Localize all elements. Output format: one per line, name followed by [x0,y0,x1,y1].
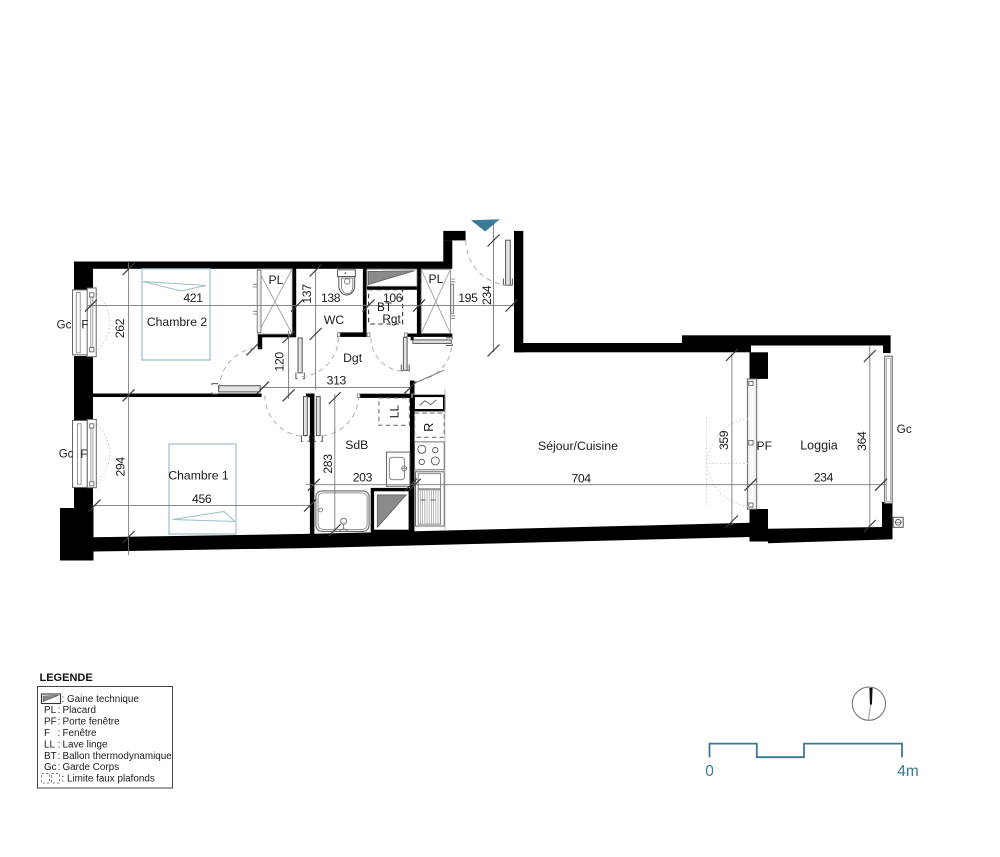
svg-text:137: 137 [300,284,314,304]
svg-text:456: 456 [192,492,212,506]
svg-text:SdB: SdB [345,438,368,452]
svg-text:120: 120 [272,352,286,372]
svg-text:PL: PL [44,705,57,716]
svg-text::: : [58,762,61,773]
svg-text:Séjour/Cuisine: Séjour/Cuisine [538,439,618,453]
svg-text:Chambre 2: Chambre 2 [147,315,208,329]
svg-text:195: 195 [458,291,478,305]
svg-text:0: 0 [705,763,714,780]
svg-text::: : [58,739,61,750]
svg-text:234: 234 [480,285,494,305]
svg-text:294: 294 [113,457,127,477]
svg-text:PL: PL [429,272,444,286]
svg-text:106: 106 [383,291,403,305]
svg-text:Porte fenêtre: Porte fenêtre [63,717,121,728]
svg-text:F: F [81,319,88,331]
svg-text::: : [58,705,61,716]
svg-text:234: 234 [814,471,834,485]
svg-text:Gc: Gc [57,319,72,331]
svg-text:LEGENDE: LEGENDE [40,672,93,684]
svg-text:PF: PF [757,439,773,453]
svg-text:PL: PL [269,273,284,287]
svg-text:: Limite faux plafonds: : Limite faux plafonds [62,774,155,785]
svg-text:BT: BT [44,751,57,762]
svg-text:138: 138 [321,291,341,305]
svg-text:Dgt: Dgt [343,351,363,365]
svg-text:Loggia: Loggia [800,438,838,452]
svg-text:262: 262 [113,318,127,338]
svg-text:LL: LL [44,739,55,750]
svg-text:203: 203 [353,471,373,485]
svg-text:LL: LL [388,405,402,419]
svg-text:: Gaine technique: : Gaine technique [62,694,140,705]
svg-text:Rgt: Rgt [382,312,401,326]
svg-text:Gc: Gc [59,449,74,461]
svg-text:PF: PF [44,717,57,728]
svg-text:R: R [422,423,436,432]
svg-text:364: 364 [855,431,869,451]
svg-text::: : [58,728,61,739]
svg-text:283: 283 [321,454,335,474]
svg-text:F: F [44,728,50,739]
svg-text:Placard: Placard [63,705,96,716]
svg-text:F: F [80,449,87,461]
svg-text::: : [58,751,61,762]
svg-text:313: 313 [327,373,347,387]
svg-text:Gc: Gc [897,422,912,436]
svg-text:Gc: Gc [44,762,57,773]
svg-text:4m: 4m [897,763,919,780]
svg-text:704: 704 [571,472,591,486]
svg-text:WC: WC [324,313,345,327]
svg-text:Lave linge: Lave linge [63,739,109,750]
svg-text:421: 421 [183,291,203,305]
svg-text:Fenêtre: Fenêtre [63,728,98,739]
svg-text:Garde Corps: Garde Corps [63,762,120,773]
svg-text:Chambre 1: Chambre 1 [168,468,229,482]
svg-text:Ballon thermodynamique: Ballon thermodynamique [63,751,173,762]
svg-text::: : [58,717,61,728]
svg-text:359: 359 [717,430,731,450]
